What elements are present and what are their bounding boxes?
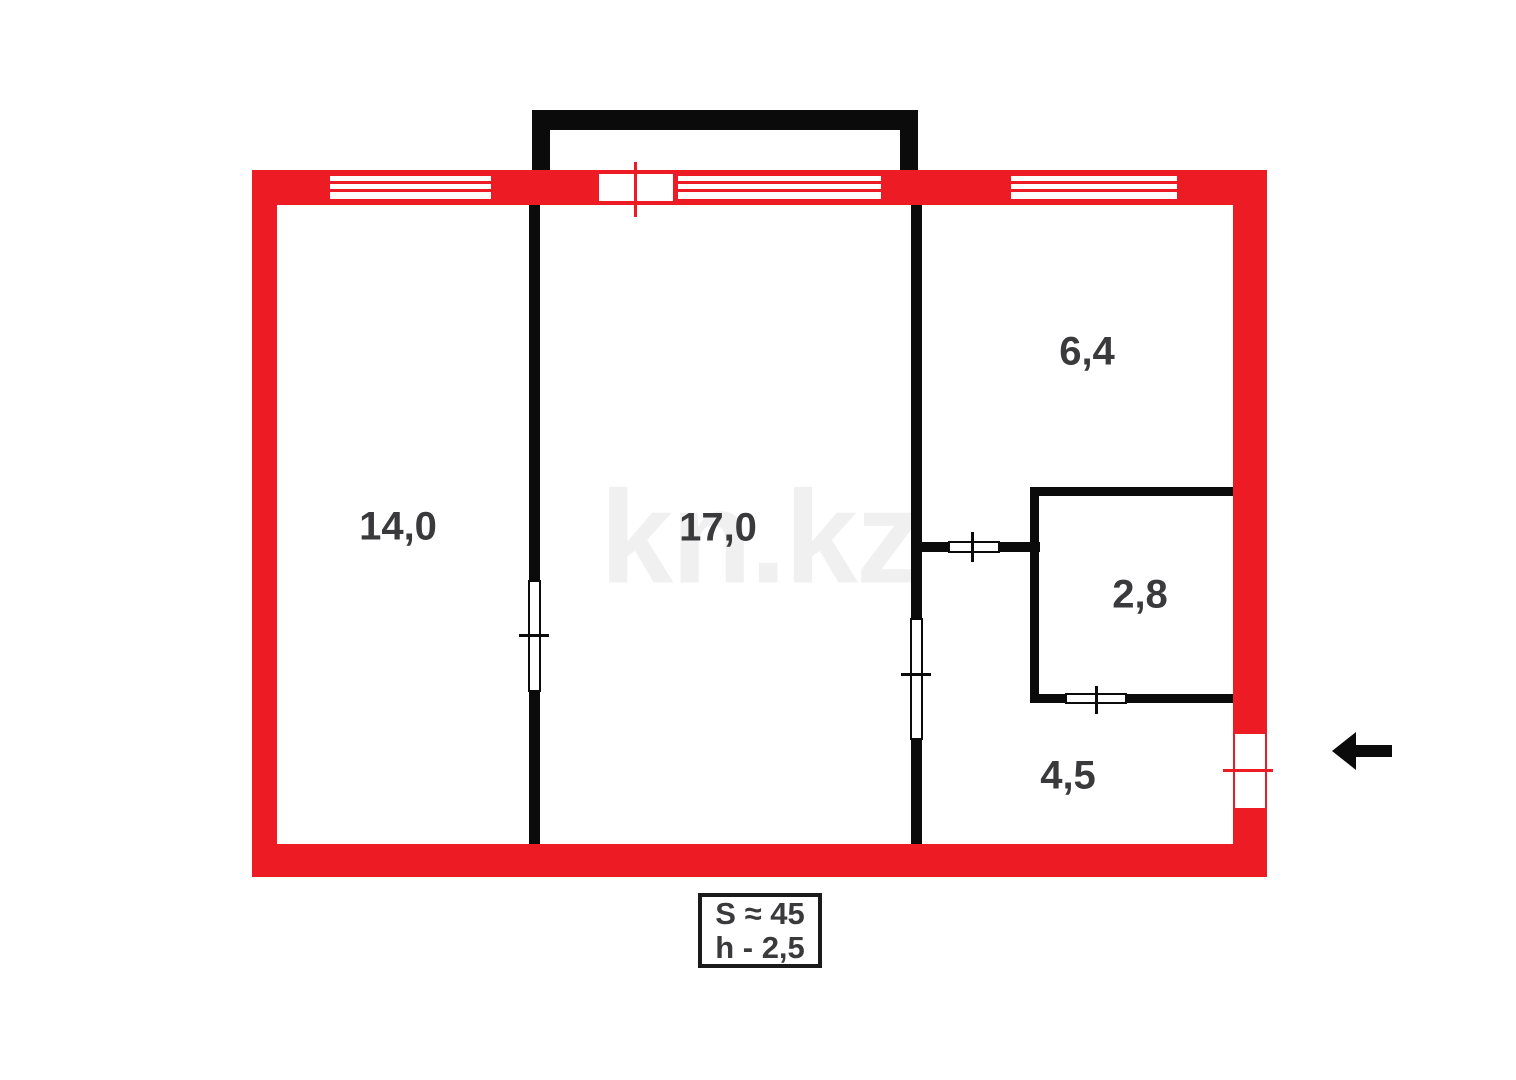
arrow-left-icon bbox=[1332, 732, 1356, 770]
window-symbol-kitchen bbox=[1009, 174, 1179, 201]
door-opening-room-17-hall bbox=[910, 618, 923, 740]
bathroom-wall-top bbox=[1030, 487, 1240, 496]
total-area-label: S ≈ 45 bbox=[715, 897, 804, 931]
room-area-label-2-8: 2,8 bbox=[1112, 573, 1168, 618]
room-area-label-4-5: 4,5 bbox=[1040, 754, 1096, 799]
balcony-door-tick bbox=[634, 162, 637, 217]
door-tick-kitchen-hall bbox=[971, 532, 974, 562]
room-area-label-17: 17,0 bbox=[679, 506, 757, 551]
door-tick-bathroom bbox=[1095, 686, 1098, 714]
door-tick-rooms-14-17 bbox=[519, 634, 549, 637]
bathroom-wall-left bbox=[1030, 487, 1039, 703]
outer-wall-left bbox=[252, 170, 277, 877]
arrow-left-shaft bbox=[1354, 745, 1392, 757]
interior-wall-rooms-14-17 bbox=[529, 175, 540, 845]
entrance-door-tick bbox=[1223, 769, 1273, 772]
floor-plan: kn.kz 14,0 17,0 6,4 2,8 bbox=[0, 0, 1516, 1080]
outer-wall-bottom bbox=[252, 844, 1267, 877]
bathroom-wall-bottom bbox=[1030, 694, 1240, 703]
summary-box: S ≈ 45 h - 2,5 bbox=[698, 893, 822, 968]
watermark-text: kn.kz bbox=[600, 462, 920, 613]
room-area-label-6-4: 6,4 bbox=[1059, 330, 1115, 375]
room-area-label-14: 14,0 bbox=[359, 505, 437, 550]
balcony-wall-top bbox=[532, 110, 918, 130]
door-opening-kitchen-hall bbox=[948, 541, 1000, 553]
balcony-wall-left bbox=[532, 110, 550, 175]
ceiling-height-label: h - 2,5 bbox=[715, 931, 805, 965]
window-symbol-room-14 bbox=[328, 174, 493, 201]
door-tick-room-17-hall bbox=[901, 673, 931, 676]
window-symbol-room-17 bbox=[676, 174, 883, 201]
interior-wall-room-17-hall bbox=[911, 175, 922, 845]
balcony-wall-right bbox=[900, 110, 918, 175]
